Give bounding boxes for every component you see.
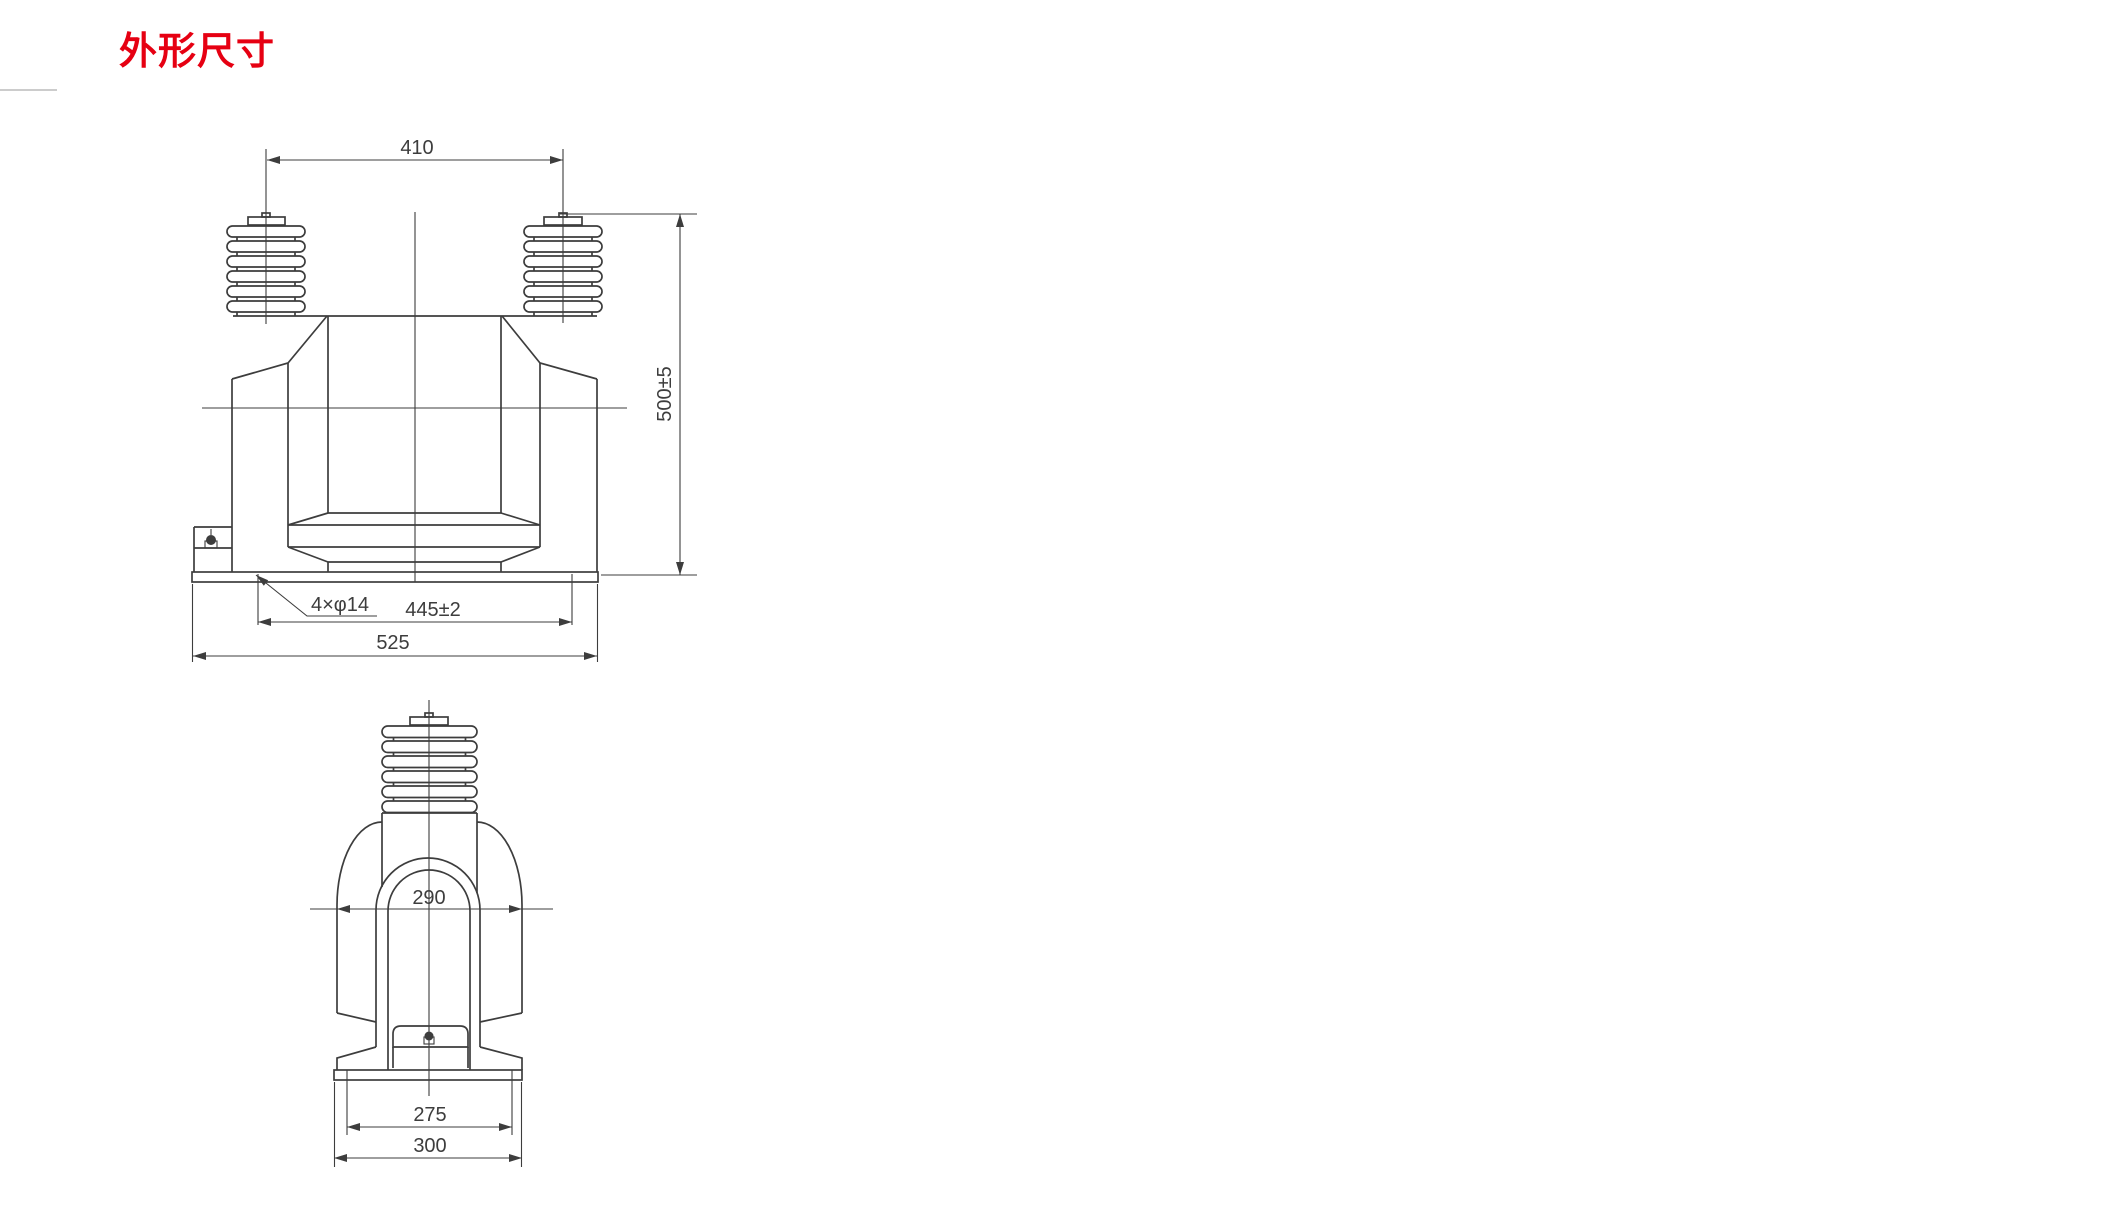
dim-base-width-front-label: 525	[376, 632, 409, 654]
dim-hole-spacing-front-label: 445±2	[405, 599, 460, 621]
dim-base-width-front: 525	[193, 584, 598, 662]
side-base-plate	[334, 1070, 522, 1080]
dim-height-label: 500±5	[654, 366, 676, 421]
dim-height: 500±5	[560, 214, 697, 575]
dim-hole-spacing-side-label: 275	[413, 1104, 446, 1126]
page: 外形尺寸	[0, 0, 2118, 1213]
front-terminal-box	[194, 527, 232, 572]
terminal-bolt-icon	[205, 529, 217, 548]
dim-dome-width-label: 290	[412, 887, 445, 909]
dim-base-width-side-label: 300	[413, 1135, 446, 1157]
side-view: 290 275 300	[310, 700, 553, 1167]
front-view: 410 500±5 445±2	[192, 137, 697, 662]
dim-top-width: 410	[267, 137, 563, 164]
dim-dome-width: 290	[310, 887, 553, 913]
outline-dimension-drawing: 410 500±5 445±2	[0, 0, 2118, 1213]
mounting-holes-label: 4×φ14	[311, 594, 369, 616]
front-base-plate	[192, 572, 598, 582]
dim-top-width-label: 410	[400, 137, 433, 159]
